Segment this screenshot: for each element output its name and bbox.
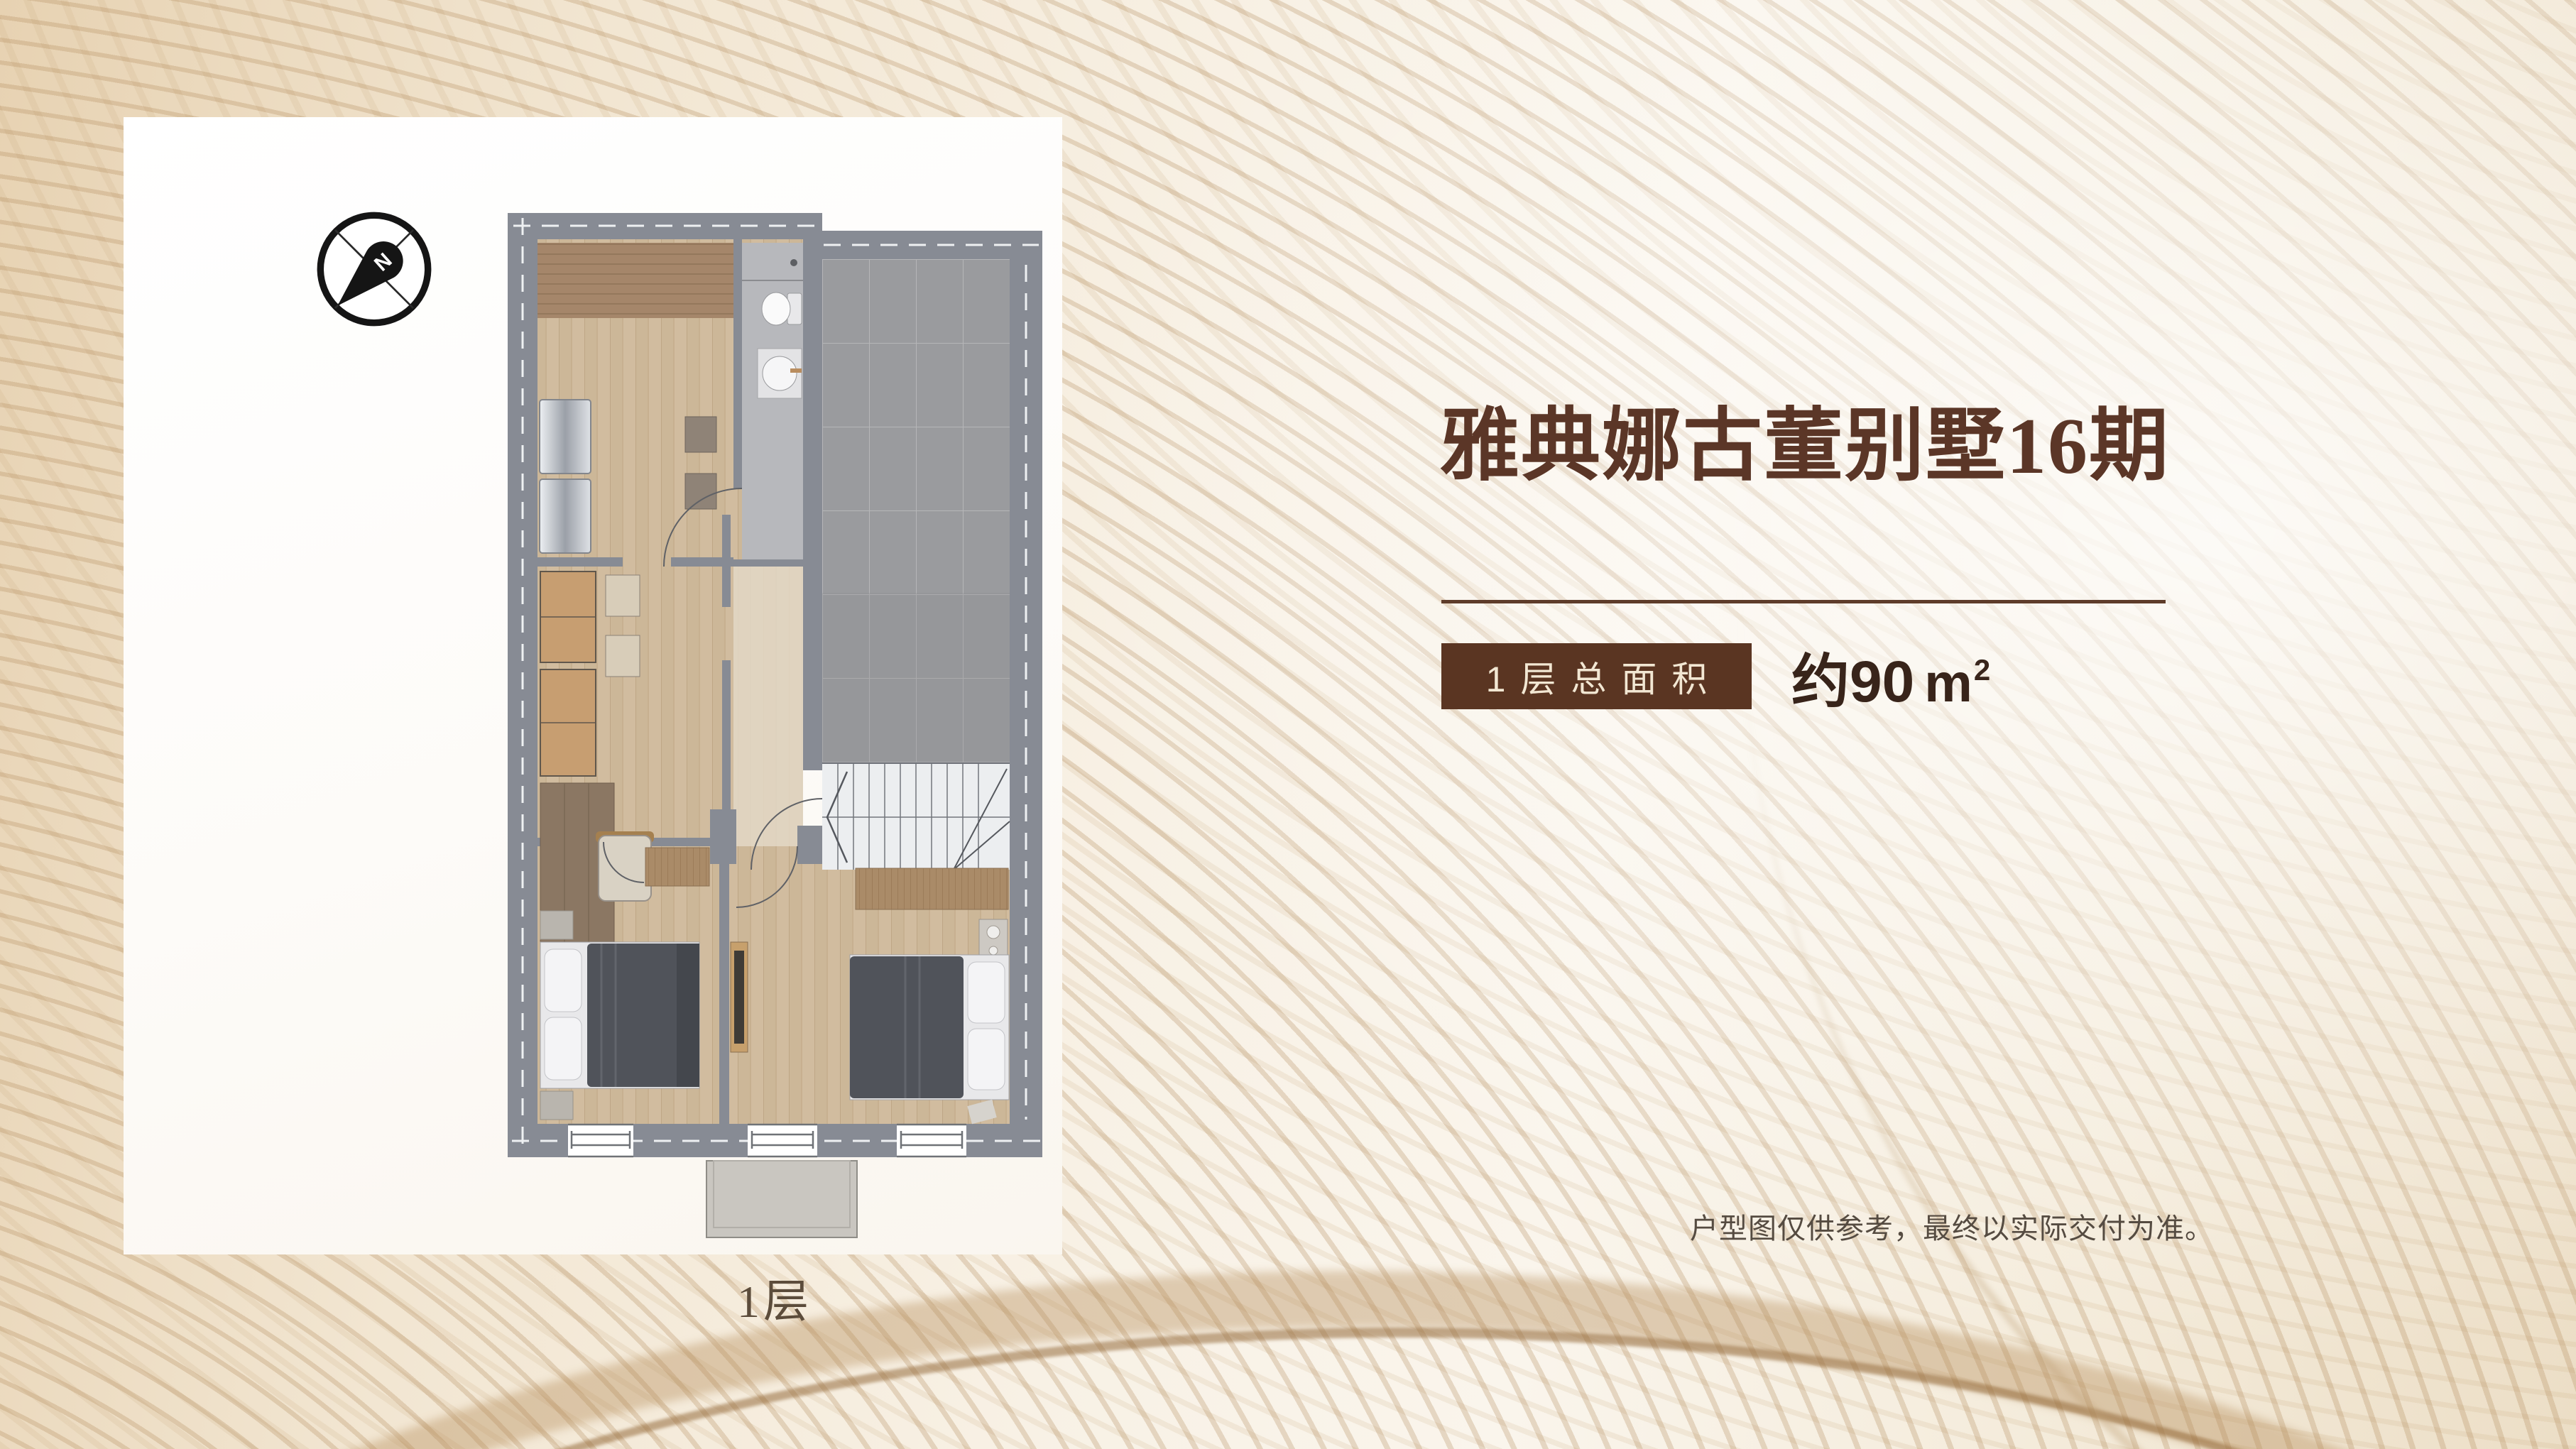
presentation-slide: N [0,0,2576,1449]
compass-icon: N [313,208,435,330]
disclaimer-text: 户型图仅供参考，最终以实际交付为准。 [1690,1205,2258,1247]
nightstand [540,1091,573,1120]
area-row: 1层总面积 约90m2 [1441,634,1990,718]
floor-plan-drawing [508,209,1042,1242]
area-number: 90 [1850,649,1914,716]
nightstand [540,911,573,939]
area-prefix: 约 [1791,634,1850,718]
entry-porch [706,1161,857,1237]
area-value: 约90m2 [1791,634,1990,718]
sink-basin-icon [763,356,797,390]
floor-label: 1层 [686,1265,863,1330]
wardrobe-icon [856,868,1008,909]
area-badge: 1层总面积 [1441,643,1752,709]
area-unit: m [1924,652,1972,714]
windows [568,1124,966,1157]
floorplan-card: N [124,117,1062,1254]
page-title: 雅典娜古董别墅16期 [1440,381,2221,496]
area-unit-sup: 2 [1974,653,1990,687]
title-divider [1441,600,2166,603]
staircase [822,763,1010,870]
